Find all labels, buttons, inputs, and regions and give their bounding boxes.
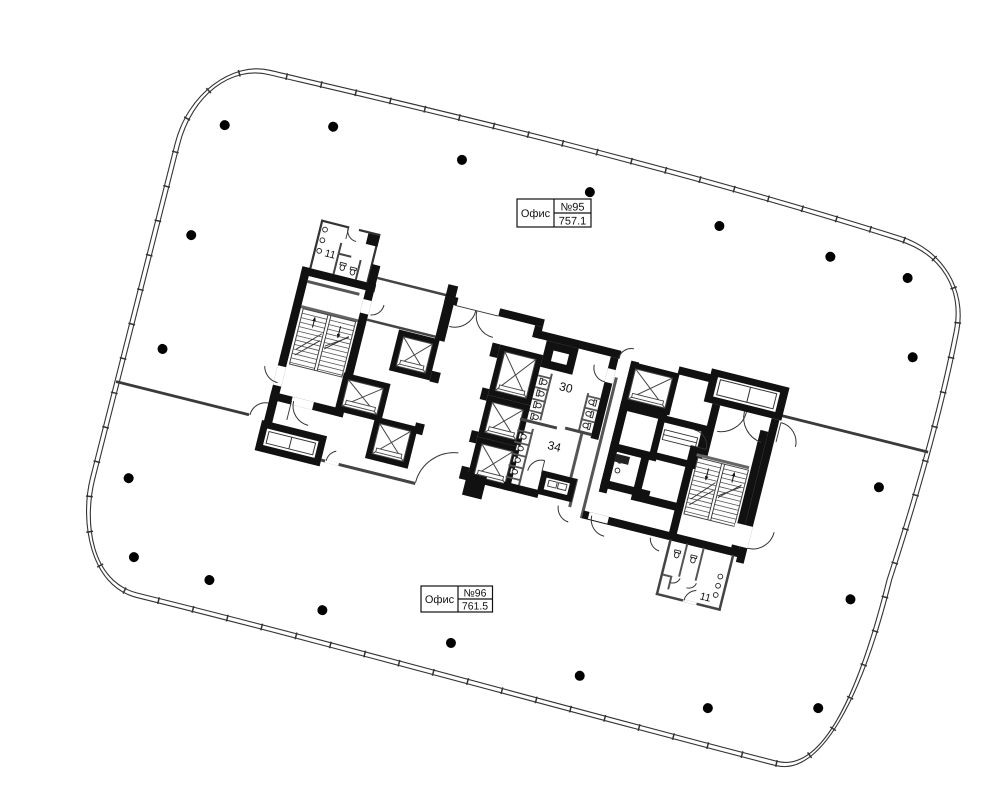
svg-text:№95: №95	[560, 202, 584, 214]
svg-text:Офис: Офис	[521, 208, 551, 220]
svg-text:757.1: 757.1	[559, 216, 587, 228]
svg-text:761.5: 761.5	[462, 601, 488, 613]
svg-text:№96: №96	[464, 588, 487, 600]
svg-text:Офис: Офис	[425, 594, 455, 606]
